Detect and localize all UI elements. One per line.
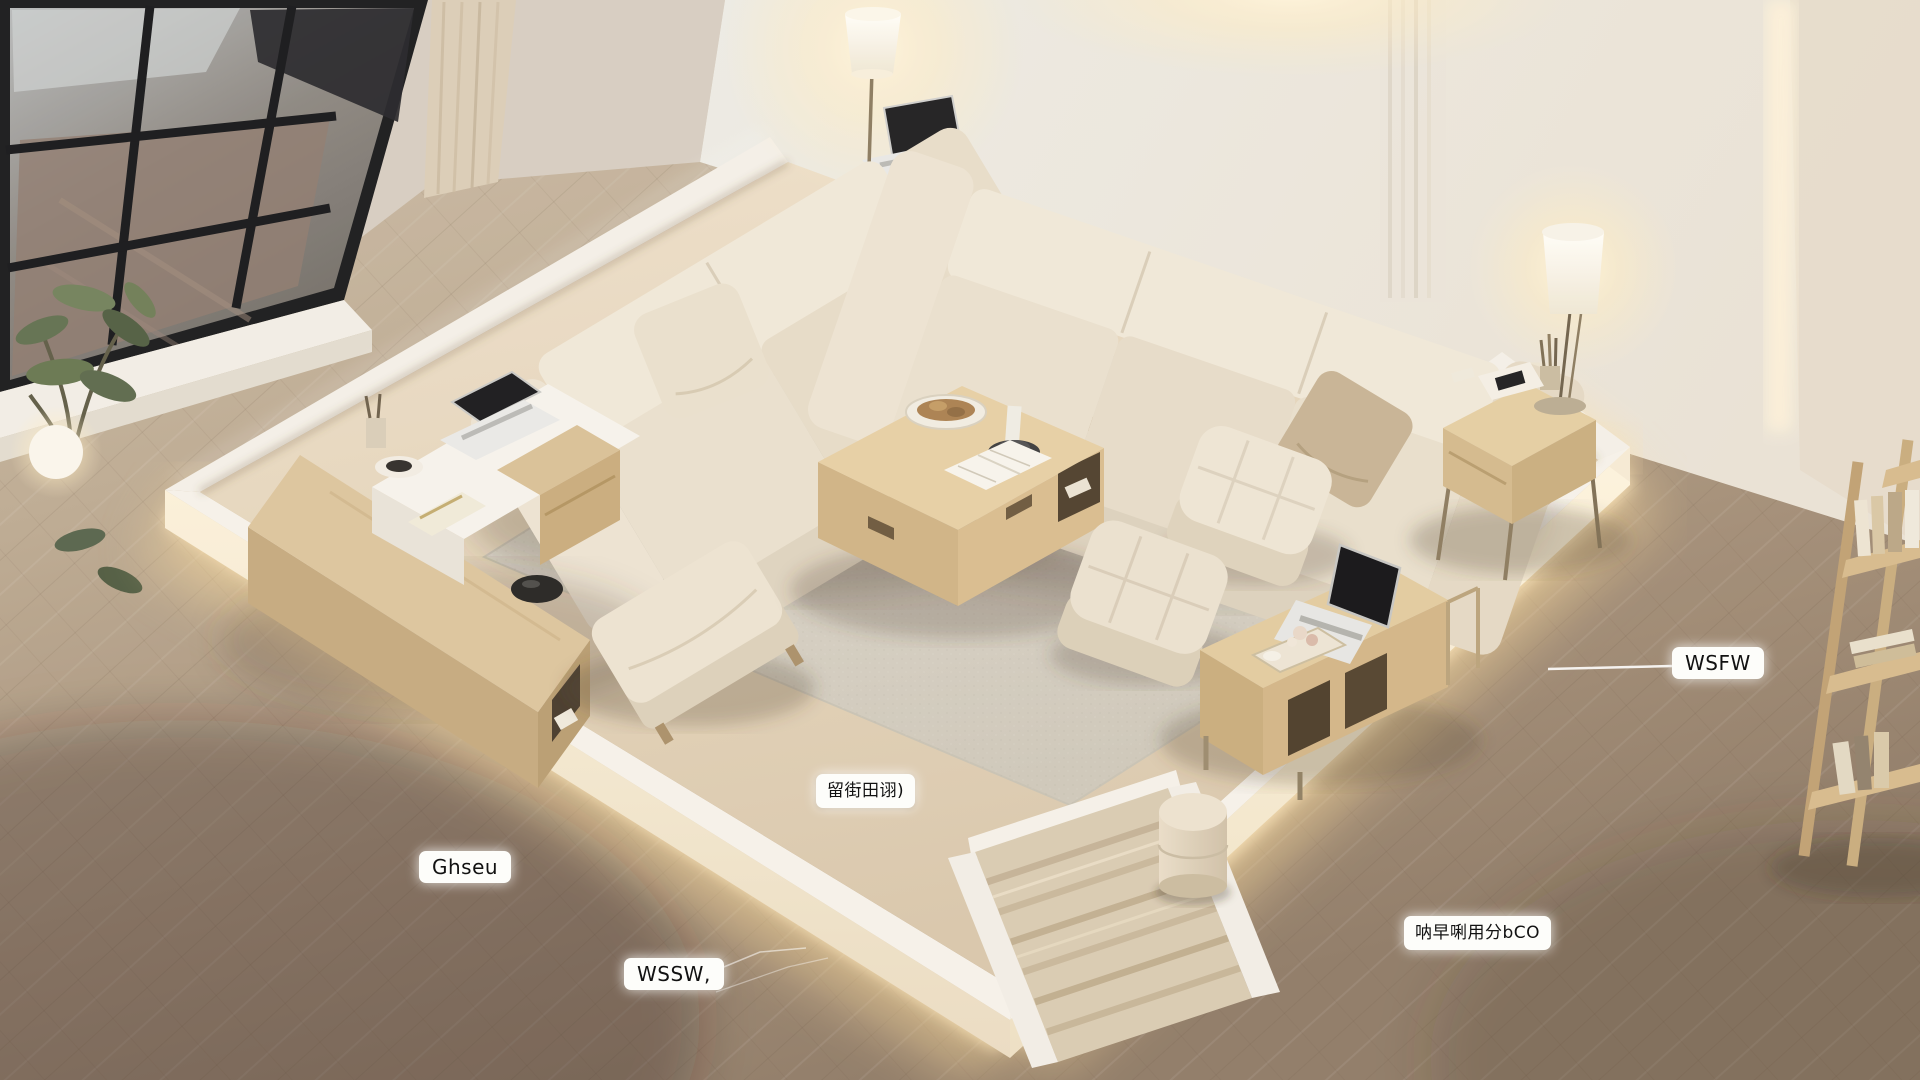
scene-canvas — [0, 0, 1920, 1080]
annotation-label-wsfw: WSFW — [1672, 647, 1764, 679]
annotation-label-right-cjk: 呐早唎用分bCO — [1404, 916, 1551, 950]
warm-overlay — [0, 0, 1920, 1080]
living-room-render: Ghseu WSSW, 留街田诩) 呐早唎用分bCO WSFW — [0, 0, 1920, 1080]
annotation-label-wssw: WSSW, — [624, 958, 724, 990]
annotation-label-ghseu: Ghseu — [419, 851, 511, 883]
annotation-label-center-cjk: 留街田诩) — [816, 774, 915, 808]
